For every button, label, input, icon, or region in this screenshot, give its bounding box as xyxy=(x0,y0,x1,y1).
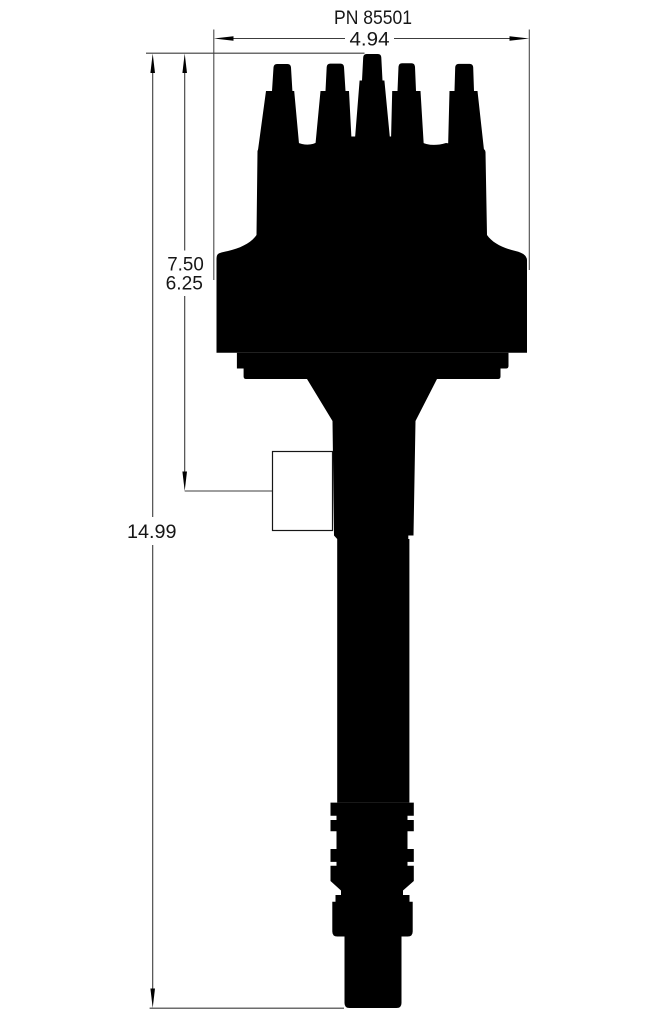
svg-text:7.50: 7.50 xyxy=(167,255,204,276)
svg-text:PN 85501: PN 85501 xyxy=(334,7,412,29)
svg-text:4.94: 4.94 xyxy=(350,30,390,51)
svg-text:14.99: 14.99 xyxy=(127,522,177,543)
svg-text:6.25: 6.25 xyxy=(166,274,203,295)
